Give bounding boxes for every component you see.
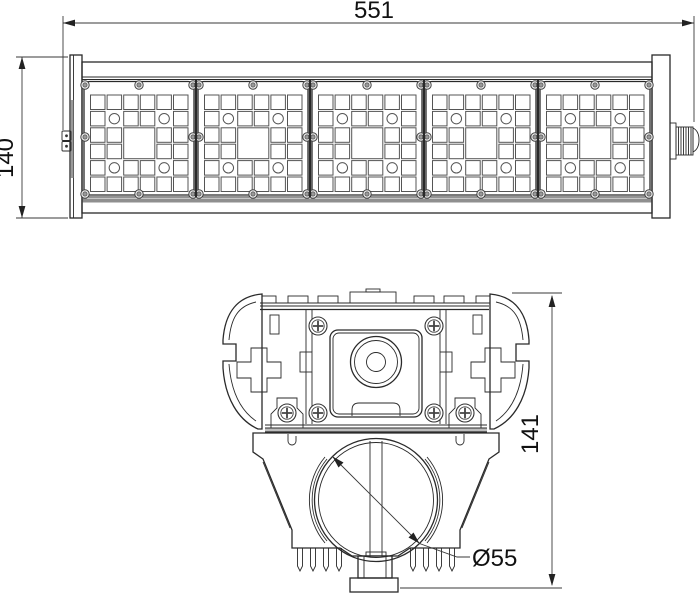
cable-gland (670, 123, 699, 159)
end-cap-right (652, 55, 670, 218)
luminaire-technical-drawing: 551 140 (0, 0, 700, 595)
dim-label-d55: Ø55 (472, 545, 517, 572)
led-module (81, 81, 197, 198)
pipe-clamp-bracket (253, 433, 499, 571)
dim-label-140: 140 (0, 138, 19, 178)
led-module (195, 81, 311, 198)
led-module (423, 81, 539, 198)
dimension-overall-width: 140 (0, 57, 68, 218)
technical-drawing-page: 551 140 (0, 0, 700, 595)
front-view: 551 140 (0, 0, 699, 218)
dimension-pipe-diameter: Ø55 (333, 457, 518, 573)
top-rail (260, 289, 490, 310)
module-separators (196, 80, 538, 197)
knurled-knob (351, 337, 402, 388)
mounting-plate (330, 330, 422, 417)
section-view: 141 Ø55 (223, 289, 562, 592)
led-module (309, 81, 425, 198)
dim-label-141: 141 (517, 414, 544, 454)
housing-lower-band (82, 199, 652, 203)
dimension-overall-length: 551 (63, 0, 694, 130)
end-cap-left (70, 55, 82, 218)
led-module (537, 81, 653, 198)
dimension-section-height: 141 (400, 293, 562, 588)
bottom-band (265, 425, 487, 432)
dim-label-551: 551 (354, 0, 394, 24)
